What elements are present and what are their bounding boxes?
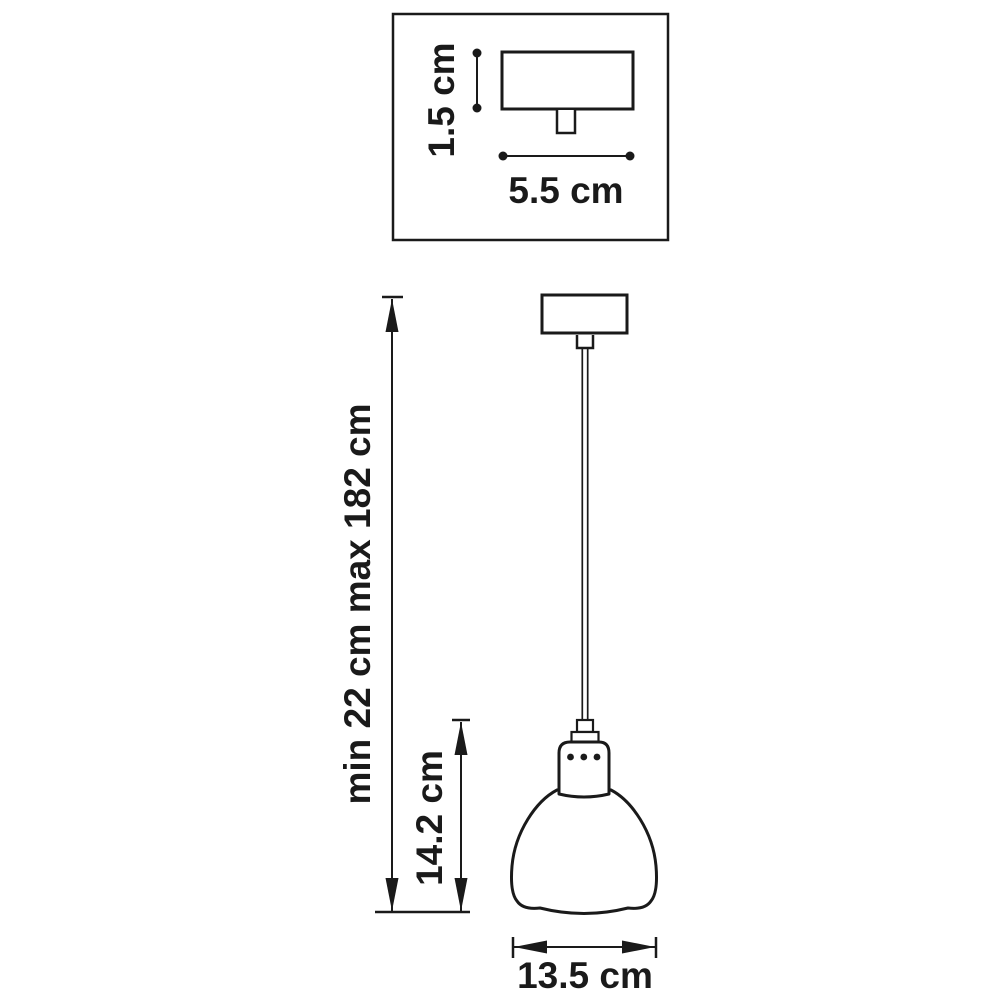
canopy-cord-stub bbox=[577, 335, 593, 348]
lamp-shade bbox=[511, 790, 656, 914]
cord-connector bbox=[577, 720, 593, 732]
canopy-height-dimension: 1.5 cm bbox=[421, 42, 482, 157]
canopy-side-view bbox=[502, 52, 633, 109]
canopy-stub bbox=[557, 110, 575, 133]
ceiling-canopy bbox=[542, 295, 627, 333]
arrow-left bbox=[514, 941, 547, 954]
suspension-height-dimension: min 22 cm max 182 cm bbox=[337, 297, 403, 911]
arrow-down bbox=[386, 878, 399, 911]
socket-vent-dot bbox=[567, 754, 574, 761]
suspension-height-label: min 22 cm max 182 cm bbox=[337, 403, 378, 804]
shade-diameter-label: 13.5 cm bbox=[517, 955, 653, 996]
suspension-cord bbox=[582, 348, 587, 720]
canopy-height-label: 1.5 cm bbox=[421, 42, 462, 157]
canopy-width-label: 5.5 cm bbox=[508, 170, 623, 211]
arrow-down bbox=[455, 878, 468, 911]
dimension-end-dot bbox=[626, 152, 635, 161]
socket-vent-dot bbox=[580, 754, 587, 761]
arrow-right bbox=[622, 941, 655, 954]
canopy-width-dimension: 5.5 cm bbox=[499, 152, 635, 212]
dimension-drawing-canvas: 1.5 cm 5.5 cm bbox=[0, 0, 1000, 1000]
shade-height-dimension: 14.2 cm bbox=[409, 720, 470, 911]
canopy-detail-inset: 1.5 cm 5.5 cm bbox=[393, 14, 668, 240]
socket-vent-dot bbox=[594, 754, 601, 761]
arrow-up bbox=[386, 299, 399, 332]
shade-diameter-dimension: 13.5 cm bbox=[513, 937, 656, 996]
shade-height-label: 14.2 cm bbox=[409, 750, 450, 886]
dimension-end-dot bbox=[499, 152, 508, 161]
arrow-up bbox=[455, 722, 468, 755]
pendant-lamp-front-view bbox=[511, 295, 656, 914]
pendant-lamp-diagram: 1.5 cm 5.5 cm bbox=[0, 0, 1000, 1000]
dimension-end-dot bbox=[473, 49, 482, 58]
dimension-end-dot bbox=[473, 104, 482, 113]
lamp-socket bbox=[559, 742, 609, 797]
